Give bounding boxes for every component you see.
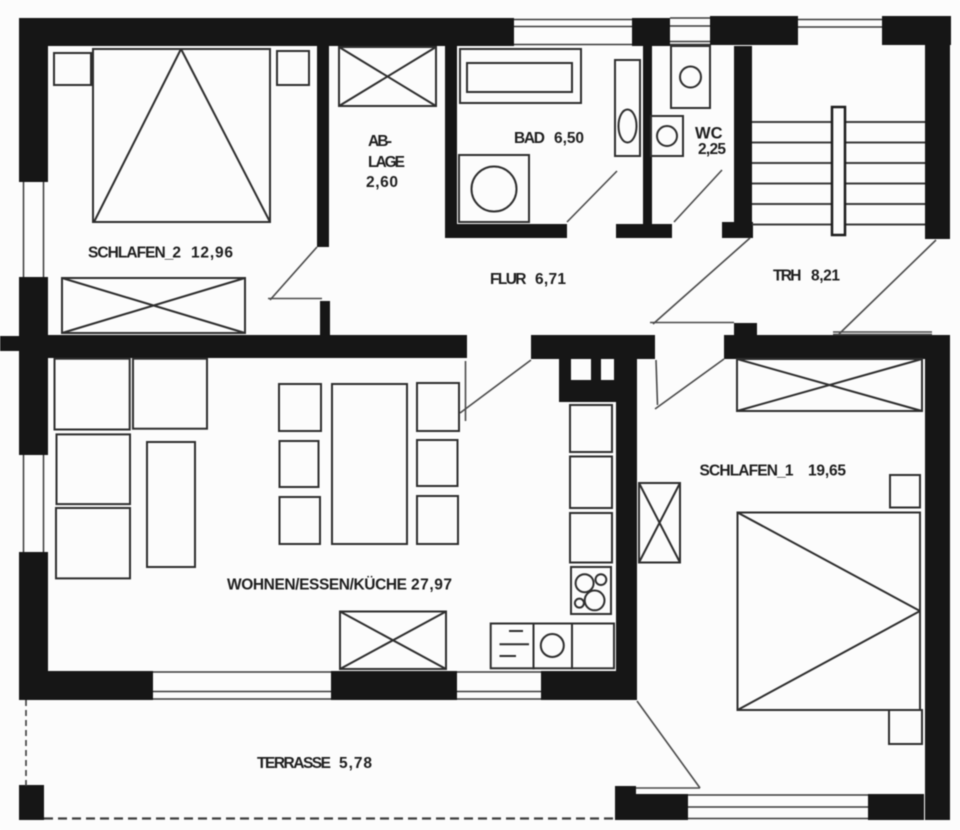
- svg-text:TERRASSE: TERRASSE: [257, 755, 331, 772]
- svg-text:BAD: BAD: [514, 130, 545, 147]
- svg-text:6,71: 6,71: [535, 271, 566, 288]
- svg-text:FLUR: FLUR: [490, 271, 527, 288]
- svg-text:2,25: 2,25: [698, 141, 726, 158]
- svg-text:27,97: 27,97: [411, 577, 452, 594]
- svg-text:AB-: AB-: [368, 133, 392, 150]
- svg-text:LAGE: LAGE: [368, 154, 405, 171]
- svg-text:2,60: 2,60: [366, 174, 398, 191]
- svg-text:5,78: 5,78: [339, 755, 372, 772]
- svg-text:19,65: 19,65: [808, 463, 846, 480]
- svg-text:TRH: TRH: [773, 268, 802, 285]
- svg-text:WOHNEN/ESSEN/KÜCHE: WOHNEN/ESSEN/KÜCHE: [227, 577, 407, 594]
- svg-text:12,96: 12,96: [191, 245, 233, 262]
- svg-text:6,50: 6,50: [554, 130, 584, 147]
- svg-text:WC: WC: [695, 125, 723, 143]
- svg-text:SCHLAFEN_1: SCHLAFEN_1: [700, 463, 794, 480]
- svg-text:8,21: 8,21: [811, 268, 840, 285]
- svg-text:SCHLAFEN_2: SCHLAFEN_2: [88, 245, 181, 262]
